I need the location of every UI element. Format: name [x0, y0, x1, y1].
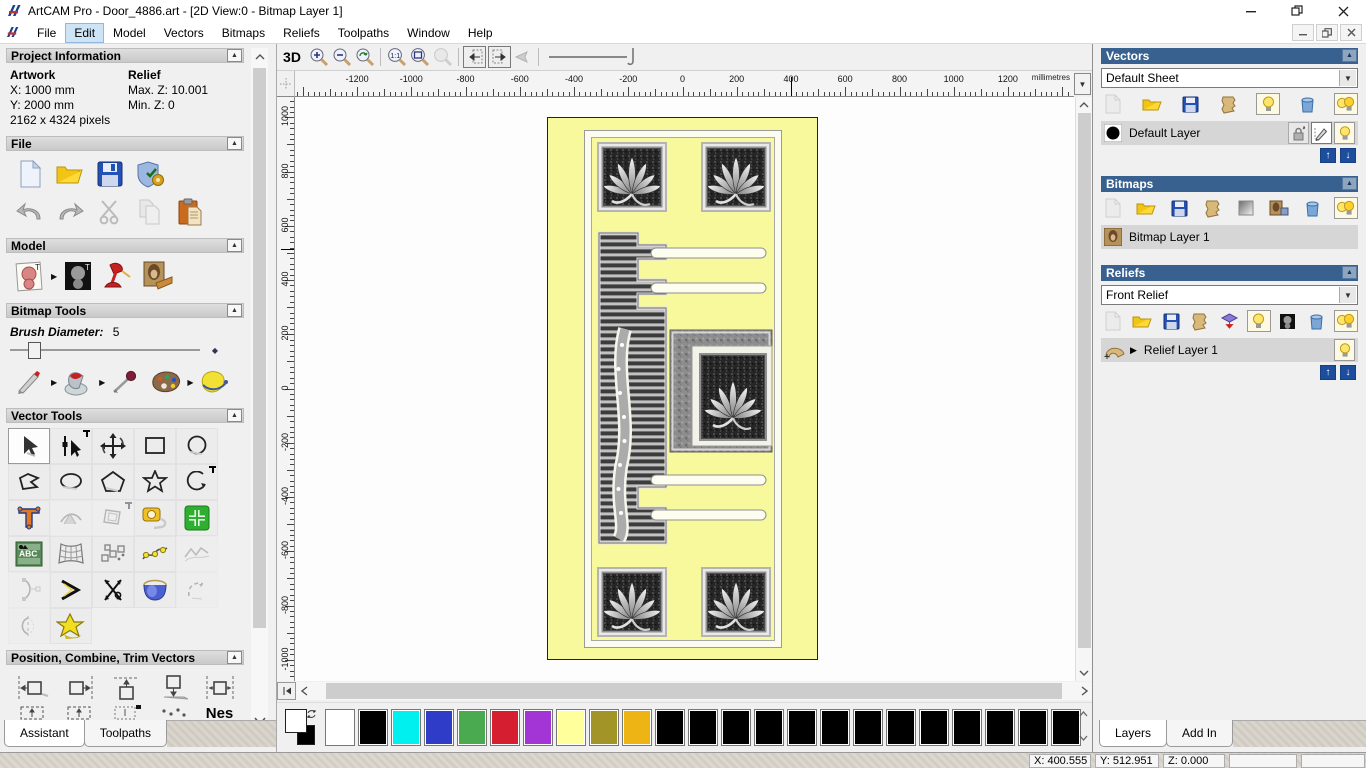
svg-text:ABC: ABC — [19, 549, 37, 559]
tab-filler — [1233, 720, 1366, 747]
ruler-tick — [330, 89, 331, 96]
zoom-1to1-icon[interactable]: 1:1 — [385, 46, 408, 68]
toggle-all-visibility-icon[interactable] — [1334, 197, 1358, 219]
align-right-icon[interactable] — [55, 671, 102, 705]
ruler-origin-button[interactable] — [277, 71, 295, 97]
create-arc-tool[interactable] — [176, 464, 218, 500]
zoom-previous-icon[interactable] — [353, 46, 376, 68]
restore-button[interactable] — [1274, 0, 1320, 22]
copy-icon[interactable] — [130, 195, 170, 229]
palette-swatch[interactable] — [457, 709, 487, 746]
ruler-tick — [290, 220, 294, 221]
zoom-fit-icon[interactable] — [408, 46, 431, 68]
ruler-options-button[interactable]: ▼ — [1074, 73, 1091, 95]
block-copy-icon[interactable] — [8, 705, 55, 720]
collapse-bitmap-tools-button[interactable]: ▲ — [227, 304, 242, 317]
block-copy-3-icon[interactable] — [102, 705, 149, 720]
envelope-distortion-tool[interactable] — [50, 536, 92, 572]
menu-item-reliefs[interactable]: Reliefs — [274, 23, 329, 43]
flyout-arrow-icon[interactable]: ▶ — [99, 378, 105, 387]
close-button[interactable] — [1320, 0, 1366, 22]
ruler-tick — [970, 92, 971, 96]
colour-palette-icon[interactable] — [146, 365, 186, 399]
chevron-down-icon[interactable]: ▼ — [1339, 287, 1356, 303]
scroll-right-icon[interactable] — [1076, 680, 1092, 702]
brush-diameter-value: 5 — [113, 325, 120, 339]
pick-colour-icon[interactable] — [106, 365, 146, 399]
layer-visibility-icon[interactable] — [1334, 122, 1355, 144]
new-model-icon[interactable] — [10, 157, 50, 191]
measure-tool[interactable] — [134, 500, 176, 536]
align-bottom-icon[interactable] — [149, 671, 196, 705]
open-model-icon[interactable] — [50, 157, 90, 191]
palette-swatch[interactable] — [556, 709, 586, 746]
scrollbar-thumb[interactable] — [253, 68, 266, 628]
ruler-tick — [563, 92, 564, 96]
ruler-tick — [290, 486, 294, 487]
new-from-image-icon[interactable] — [1267, 197, 1291, 219]
project-information-title: Project Information — [11, 49, 121, 63]
clear-bitmap-layer-icon[interactable] — [1234, 197, 1258, 219]
merge-relief-layers-icon[interactable] — [1188, 310, 1212, 332]
transfer-relief-icon[interactable] — [1218, 310, 1242, 332]
save-bitmap-layer-icon[interactable] — [1168, 197, 1192, 219]
status-y-coordinate: Y: 512.951 — [1095, 754, 1159, 768]
position-combine-trim-header[interactable]: Position, Combine, Trim Vectors▲ — [6, 650, 244, 665]
ruler-tick — [290, 475, 294, 476]
ruler-tick — [954, 87, 955, 96]
flyout-arrow-icon[interactable]: ▶ — [187, 378, 193, 387]
bitmap-layer-row[interactable]: Bitmap Layer 1 — [1101, 225, 1358, 249]
tab-toolpaths[interactable]: Toolpaths — [84, 720, 167, 747]
ruler-tick — [997, 92, 998, 96]
save-relief-layer-icon[interactable] — [1159, 310, 1183, 332]
project-information-header[interactable]: Project Information▲ — [6, 48, 244, 63]
cut-icon[interactable] — [90, 195, 130, 229]
model-options-icon[interactable] — [130, 157, 170, 191]
scroll-left-icon[interactable] — [296, 680, 312, 702]
ruler-tick — [943, 92, 944, 96]
ruler-tick — [612, 92, 613, 96]
move-relief-layer-down-button[interactable]: ↓ — [1340, 365, 1356, 380]
ruler-tick — [552, 92, 553, 96]
fit-arcs-tool[interactable] — [134, 536, 176, 572]
panel-toggle-button[interactable] — [277, 682, 296, 700]
reliefs-section-header[interactable]: Reliefs▲ — [1101, 265, 1358, 281]
ruler-tick — [290, 275, 294, 276]
ruler-label: 200 — [729, 74, 744, 84]
palette-swatch[interactable] — [424, 709, 454, 746]
expand-layer-icon[interactable]: ▶ — [1130, 345, 1137, 356]
ruler-tick — [617, 92, 618, 96]
canvas-vertical-scrollbar[interactable] — [1075, 97, 1092, 681]
align-top-icon[interactable] — [102, 671, 149, 705]
ruler-label: 0 — [680, 74, 685, 84]
ruler-tick — [737, 87, 738, 96]
ruler-tick — [965, 92, 966, 96]
create-rectangle-tool[interactable] — [134, 428, 176, 464]
trim-vectors-tool[interactable] — [92, 572, 134, 608]
chevron-down-icon[interactable]: ▼ — [1339, 70, 1356, 86]
pan-view-icon[interactable] — [511, 46, 534, 68]
create-star-tool[interactable] — [134, 464, 176, 500]
child-minimize-button[interactable] — [1292, 24, 1314, 41]
ruler-tick — [287, 524, 294, 525]
collapse-vector-tools-button[interactable]: ▲ — [227, 409, 242, 422]
palette-swatch[interactable] — [721, 709, 751, 746]
redo-icon[interactable] — [50, 195, 90, 229]
ruler-tick — [921, 92, 922, 96]
paste-icon[interactable] — [170, 195, 210, 229]
menu-item-model[interactable]: Model — [104, 23, 155, 43]
ruler-label: -1000 — [400, 74, 423, 84]
ruler-tick — [290, 329, 294, 330]
reduce-colours-icon[interactable] — [194, 365, 234, 399]
save-model-icon[interactable] — [90, 157, 130, 191]
ruler-tick — [395, 92, 396, 96]
ruler-tick — [1008, 87, 1009, 96]
ruler-tick — [290, 427, 294, 428]
palette-swatch[interactable] — [589, 709, 619, 746]
palette-swatch[interactable] — [622, 709, 652, 746]
ruler-tick — [290, 622, 294, 623]
ruler-label: -200 — [280, 425, 290, 459]
ruler-label: 1000 — [280, 99, 290, 133]
block-copy-2-icon[interactable] — [55, 705, 102, 720]
palette-swatch[interactable] — [853, 709, 883, 746]
sheet-selector[interactable]: Default Sheet▼ — [1101, 68, 1358, 88]
align-centre-icon[interactable] — [196, 671, 243, 705]
palette-swatch[interactable] — [358, 709, 388, 746]
scroll-up-icon[interactable] — [251, 54, 268, 60]
palette-swatch[interactable] — [523, 709, 553, 746]
collapse-project-info-button[interactable]: ▲ — [227, 49, 242, 62]
pin-icon — [209, 466, 216, 473]
canvas-2d-view[interactable] — [295, 97, 1075, 681]
scrollbar-track[interactable] — [312, 682, 1076, 700]
canvas-horizontal-scrollbar[interactable] — [277, 682, 1092, 700]
scatter-copy-icon[interactable] — [149, 705, 196, 720]
save-vector-layer-icon[interactable] — [1179, 93, 1203, 115]
merge-bitmap-layers-icon[interactable] — [1201, 197, 1225, 219]
palette-swatch[interactable] — [886, 709, 916, 746]
merge-vector-layers-icon[interactable] — [1217, 93, 1241, 115]
scrollbar-thumb[interactable] — [1078, 113, 1091, 648]
ruler-tick — [542, 92, 543, 96]
svg-text:1:1: 1:1 — [390, 53, 400, 60]
scroll-up-icon[interactable] — [1076, 102, 1092, 108]
ruler-tick — [290, 182, 294, 183]
vector-layer-row[interactable]: Default Layer — [1101, 121, 1358, 145]
scrollbar-thumb[interactable] — [326, 683, 1062, 699]
ruler-label: 600 — [838, 74, 853, 84]
bitmap-layer-name[interactable]: Bitmap Layer 1 — [1129, 230, 1210, 244]
palette-swatch[interactable] — [754, 709, 784, 746]
palette-swatch[interactable] — [325, 709, 355, 746]
create-ellipse-tool[interactable] — [50, 464, 92, 500]
palette-swatch[interactable] — [952, 709, 982, 746]
ruler-tick — [290, 513, 294, 514]
bitmaps-section-header[interactable]: Bitmaps▲ — [1101, 176, 1358, 192]
svg-text:T: T — [35, 263, 40, 272]
ruler-tick — [290, 595, 294, 596]
paint-icon[interactable] — [10, 365, 50, 399]
ruler-tick — [683, 87, 684, 96]
load-relief-from-image-icon[interactable] — [138, 259, 178, 293]
slider-thumb[interactable] — [28, 342, 41, 359]
interactive-distortion-tool[interactable] — [134, 572, 176, 608]
new-bitmap-layer-icon[interactable] — [1101, 197, 1125, 219]
paste-text-block-tool[interactable]: ABC — [8, 536, 50, 572]
ruler-tick — [525, 92, 526, 96]
menu-item-edit[interactable]: Edit — [65, 23, 104, 43]
position-section-title: Position, Combine, Trim Vectors — [11, 651, 195, 665]
app-logo-icon — [6, 3, 22, 19]
ruler-tick — [937, 92, 938, 96]
zoom-out-icon[interactable] — [330, 46, 353, 68]
ruler-tick — [290, 399, 294, 400]
tab-assistant[interactable]: Assistant — [4, 720, 85, 747]
assistant-scrollbar[interactable] — [251, 48, 268, 747]
layer-visibility-icon[interactable] — [1334, 339, 1355, 361]
ruler-tick — [975, 92, 976, 96]
layer-colour-chip[interactable] — [1104, 124, 1122, 142]
join-vectors-tool[interactable] — [50, 572, 92, 608]
ruler-tick — [406, 92, 407, 96]
create-polyline-tool[interactable] — [8, 464, 50, 500]
ruler-tick — [900, 87, 901, 96]
ruler-tick — [287, 633, 294, 634]
vector-doctor-plus-tool[interactable] — [176, 500, 218, 536]
collapse-model-button[interactable]: ▲ — [227, 239, 242, 252]
collapse-file-button[interactable]: ▲ — [227, 137, 242, 150]
child-restore-button[interactable] — [1316, 24, 1338, 41]
move-relief-layer-up-button[interactable]: ↑ — [1320, 365, 1336, 380]
adjust-model-lighting-icon[interactable]: T — [58, 259, 98, 293]
smoothness-handle-icon[interactable] — [627, 47, 639, 67]
ruler-tick — [290, 210, 294, 211]
artwork-label: Artwork — [10, 68, 128, 83]
primary-secondary-colour-indicator[interactable] — [285, 709, 321, 747]
delete-relief-layer-icon[interactable] — [1305, 310, 1329, 332]
ruler-tick — [769, 92, 770, 96]
ruler-tick — [482, 92, 483, 96]
flood-fill-icon[interactable] — [58, 365, 98, 399]
ruler-label: -200 — [619, 74, 637, 84]
child-close-button[interactable] — [1340, 24, 1362, 41]
ruler-tick — [699, 92, 700, 96]
collapse-reliefs-button[interactable]: ▲ — [1342, 266, 1357, 279]
ruler-tick — [417, 92, 418, 96]
ruler-tick — [786, 92, 787, 96]
palette-swatch[interactable] — [490, 709, 520, 746]
delete-bitmap-layer-icon[interactable] — [1301, 197, 1325, 219]
palette-swatch[interactable] — [688, 709, 718, 746]
collapse-position-button[interactable]: ▲ — [227, 651, 242, 664]
swap-colours-icon[interactable] — [307, 709, 317, 719]
move-layer-up-button[interactable]: ↑ — [1320, 148, 1336, 163]
vector-layer-name[interactable]: Default Layer — [1129, 126, 1200, 140]
nesting-icon[interactable]: Nes — [196, 705, 243, 720]
open-vector-layer-icon[interactable] — [1140, 93, 1164, 115]
lock-layer-icon[interactable] — [1288, 122, 1309, 144]
ruler-tick — [290, 546, 294, 547]
ruler-tick — [290, 150, 294, 151]
mirror-vectors-tool[interactable] — [8, 608, 50, 644]
ruler-tick — [449, 92, 450, 96]
view-3d-button[interactable]: 3D — [277, 46, 307, 68]
document-icon — [5, 25, 20, 40]
new-vector-layer-icon[interactable] — [1101, 93, 1125, 115]
ruler-label: -400 — [280, 479, 290, 513]
fit-polyline-tool[interactable] — [176, 536, 218, 572]
menu-item-vectors[interactable]: Vectors — [155, 23, 213, 43]
ruler-tick — [290, 627, 294, 628]
collapse-bitmaps-button[interactable]: ▲ — [1342, 177, 1357, 190]
relief-layer-name[interactable]: Relief Layer 1 — [1144, 343, 1218, 357]
ruler-label: 800 — [892, 74, 907, 84]
vector-tools-header[interactable]: Vector Tools▲ — [6, 408, 244, 423]
open-relief-layer-icon[interactable] — [1130, 310, 1154, 332]
offset-vector-tool[interactable] — [92, 500, 134, 536]
palette-swatch[interactable] — [1018, 709, 1048, 746]
ruler-tick — [466, 87, 467, 96]
ruler-label: 400 — [280, 262, 290, 296]
brush-diameter-slider[interactable]: ◆ — [10, 341, 240, 359]
smoothness-slider[interactable] — [549, 47, 644, 67]
create-circle-tool[interactable] — [176, 428, 218, 464]
set-light-material-icon[interactable] — [98, 259, 138, 293]
toggle-all-visibility-icon[interactable] — [1334, 93, 1358, 115]
ruler-tick — [1057, 92, 1058, 96]
palette-swatch[interactable] — [919, 709, 949, 746]
text-on-curve-tool[interactable] — [50, 500, 92, 536]
select-vectors-tool[interactable] — [8, 428, 50, 464]
vector-doctor-tool[interactable] — [50, 608, 92, 644]
set-model-size-icon[interactable]: T — [10, 259, 50, 293]
ruler-tick — [290, 372, 294, 373]
palette-swatch[interactable] — [787, 709, 817, 746]
ruler-label: 200 — [280, 316, 290, 350]
ruler-tick — [1003, 92, 1004, 96]
block-paste-tool[interactable] — [92, 536, 134, 572]
ruler-tick — [290, 665, 294, 666]
palette-swatch[interactable] — [391, 709, 421, 746]
minimize-button[interactable] — [1228, 0, 1274, 22]
collapse-vectors-button[interactable]: ▲ — [1342, 49, 1357, 62]
menu-item-help[interactable]: Help — [459, 23, 502, 43]
relief-layer-row[interactable]: ▶ Relief Layer 1 — [1101, 338, 1358, 362]
ruler-tick — [290, 540, 294, 541]
transform-vectors-tool[interactable] — [92, 428, 134, 464]
align-left-icon[interactable] — [8, 671, 55, 705]
zoom-selected-icon[interactable] — [431, 46, 454, 68]
palette-scroll-down-icon[interactable] — [1077, 735, 1089, 741]
delete-vector-layer-icon[interactable] — [1295, 93, 1319, 115]
ruler-tick — [710, 89, 711, 96]
ruler-tick — [290, 562, 294, 563]
tab-add-in[interactable]: Add In — [1166, 720, 1233, 747]
ruler-tick — [601, 89, 602, 96]
ruler-tick — [290, 584, 294, 585]
ruler-tick — [290, 248, 294, 249]
create-text-tool[interactable] — [8, 500, 50, 536]
status-cell-empty — [1229, 754, 1297, 768]
palette-swatch[interactable] — [820, 709, 850, 746]
ruler-tick — [290, 568, 294, 569]
ruler-tick — [645, 92, 646, 96]
ruler-tick — [290, 432, 294, 433]
view-next-vector-icon[interactable] — [488, 46, 511, 68]
model-section-header[interactable]: Model▲ — [6, 238, 244, 253]
ruler-tick — [498, 92, 499, 96]
flyout-arrow-icon[interactable]: ▶ — [51, 272, 57, 281]
menu-item-file[interactable]: File — [28, 23, 65, 43]
ruler-tick — [290, 177, 294, 178]
ruler-tick — [290, 161, 294, 162]
status-z-coordinate: Z: 0.000 — [1163, 754, 1225, 768]
ruler-tick — [290, 204, 294, 205]
ruler-tick — [558, 92, 559, 96]
relief-selector[interactable]: Front Relief▼ — [1101, 285, 1358, 305]
new-relief-layer-icon[interactable] — [1101, 310, 1125, 332]
file-section-header[interactable]: File▲ — [6, 136, 244, 151]
ruler-tick — [290, 134, 294, 135]
close-vector-tool[interactable] — [176, 572, 218, 608]
ruler-tick — [290, 351, 294, 352]
toggle-visibility-icon[interactable] — [1256, 93, 1280, 115]
palette-swatch[interactable] — [655, 709, 685, 746]
ruler-tick — [290, 448, 294, 449]
ruler-tick — [290, 313, 294, 314]
menu-item-toolpaths[interactable]: Toolpaths — [329, 23, 398, 43]
toggle-visibility-icon[interactable] — [1247, 310, 1271, 332]
ruler-tick — [379, 92, 380, 96]
menu-item-window[interactable]: Window — [398, 23, 459, 43]
open-bitmap-layer-icon[interactable] — [1134, 197, 1158, 219]
scroll-down-icon[interactable] — [1076, 670, 1092, 676]
node-editing-tool[interactable] — [50, 428, 92, 464]
ruler-tick — [290, 649, 294, 650]
primary-colour-swatch[interactable] — [285, 709, 307, 733]
edit-layer-icon[interactable] — [1311, 122, 1332, 144]
view-previous-vector-icon[interactable] — [463, 46, 486, 68]
zoom-in-icon[interactable] — [307, 46, 330, 68]
create-polygon-tool[interactable] — [92, 464, 134, 500]
nesting-label: Nes — [206, 705, 234, 720]
flyout-arrow-icon[interactable]: ▶ — [51, 378, 57, 387]
ruler-tick — [574, 87, 575, 96]
menu-item-bitmaps[interactable]: Bitmaps — [213, 23, 274, 43]
undo-icon[interactable] — [10, 195, 50, 229]
ruler-tick — [290, 676, 294, 677]
bitmap-tools-header[interactable]: Bitmap Tools▲ — [6, 303, 244, 318]
move-layer-down-button[interactable]: ↓ — [1340, 148, 1356, 163]
ruler-label: -400 — [565, 74, 583, 84]
tab-layers[interactable]: Layers — [1099, 720, 1167, 747]
ruler-tick — [287, 416, 294, 417]
ruler-tick — [290, 215, 294, 216]
arc-editing-tool[interactable] — [8, 572, 50, 608]
toggle-all-visibility-icon[interactable] — [1334, 310, 1358, 332]
vectors-section-header[interactable]: Vectors▲ — [1101, 48, 1358, 64]
artwork-x-value: X: 1000 mm — [10, 83, 128, 98]
palette-swatch[interactable] — [985, 709, 1015, 746]
ruler-tick — [780, 92, 781, 96]
palette-scroll-up-icon[interactable] — [1077, 711, 1089, 717]
ruler-tick — [290, 237, 294, 238]
greyscale-from-relief-icon[interactable] — [1276, 310, 1300, 332]
